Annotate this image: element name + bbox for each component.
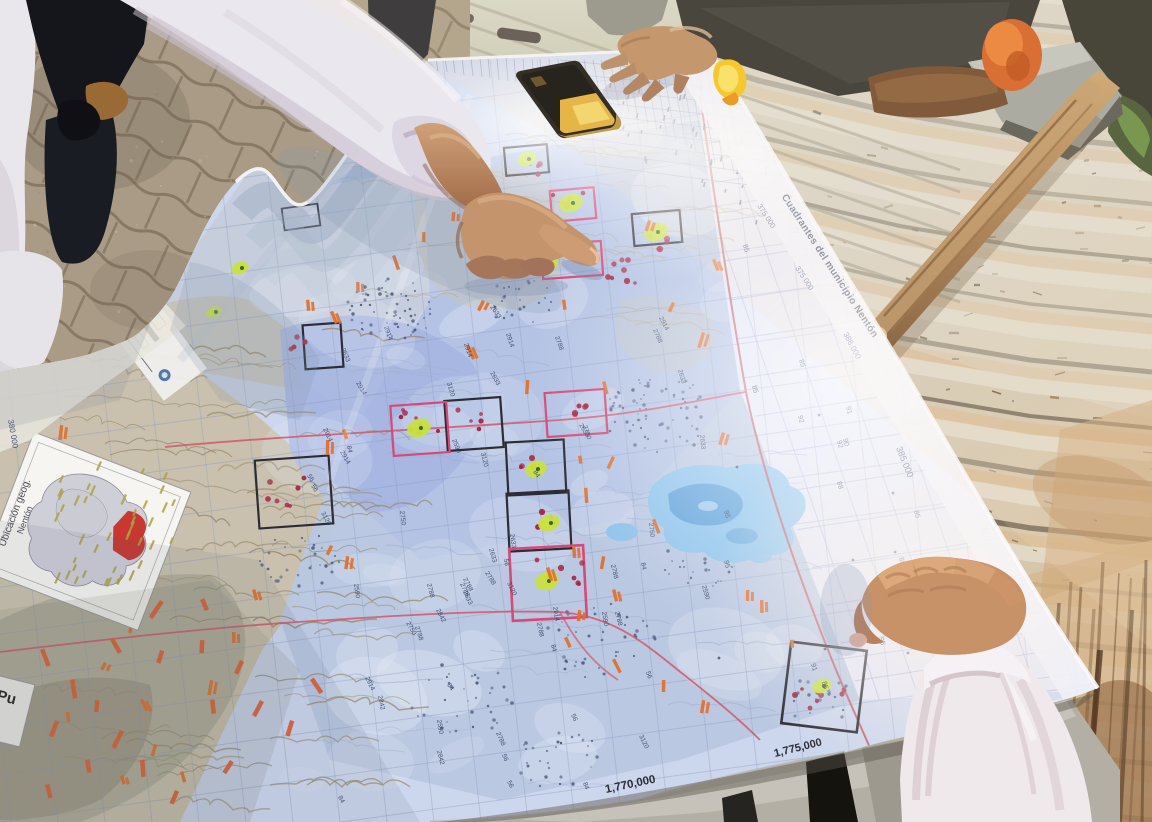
svg-text:56: 56 <box>502 558 510 567</box>
